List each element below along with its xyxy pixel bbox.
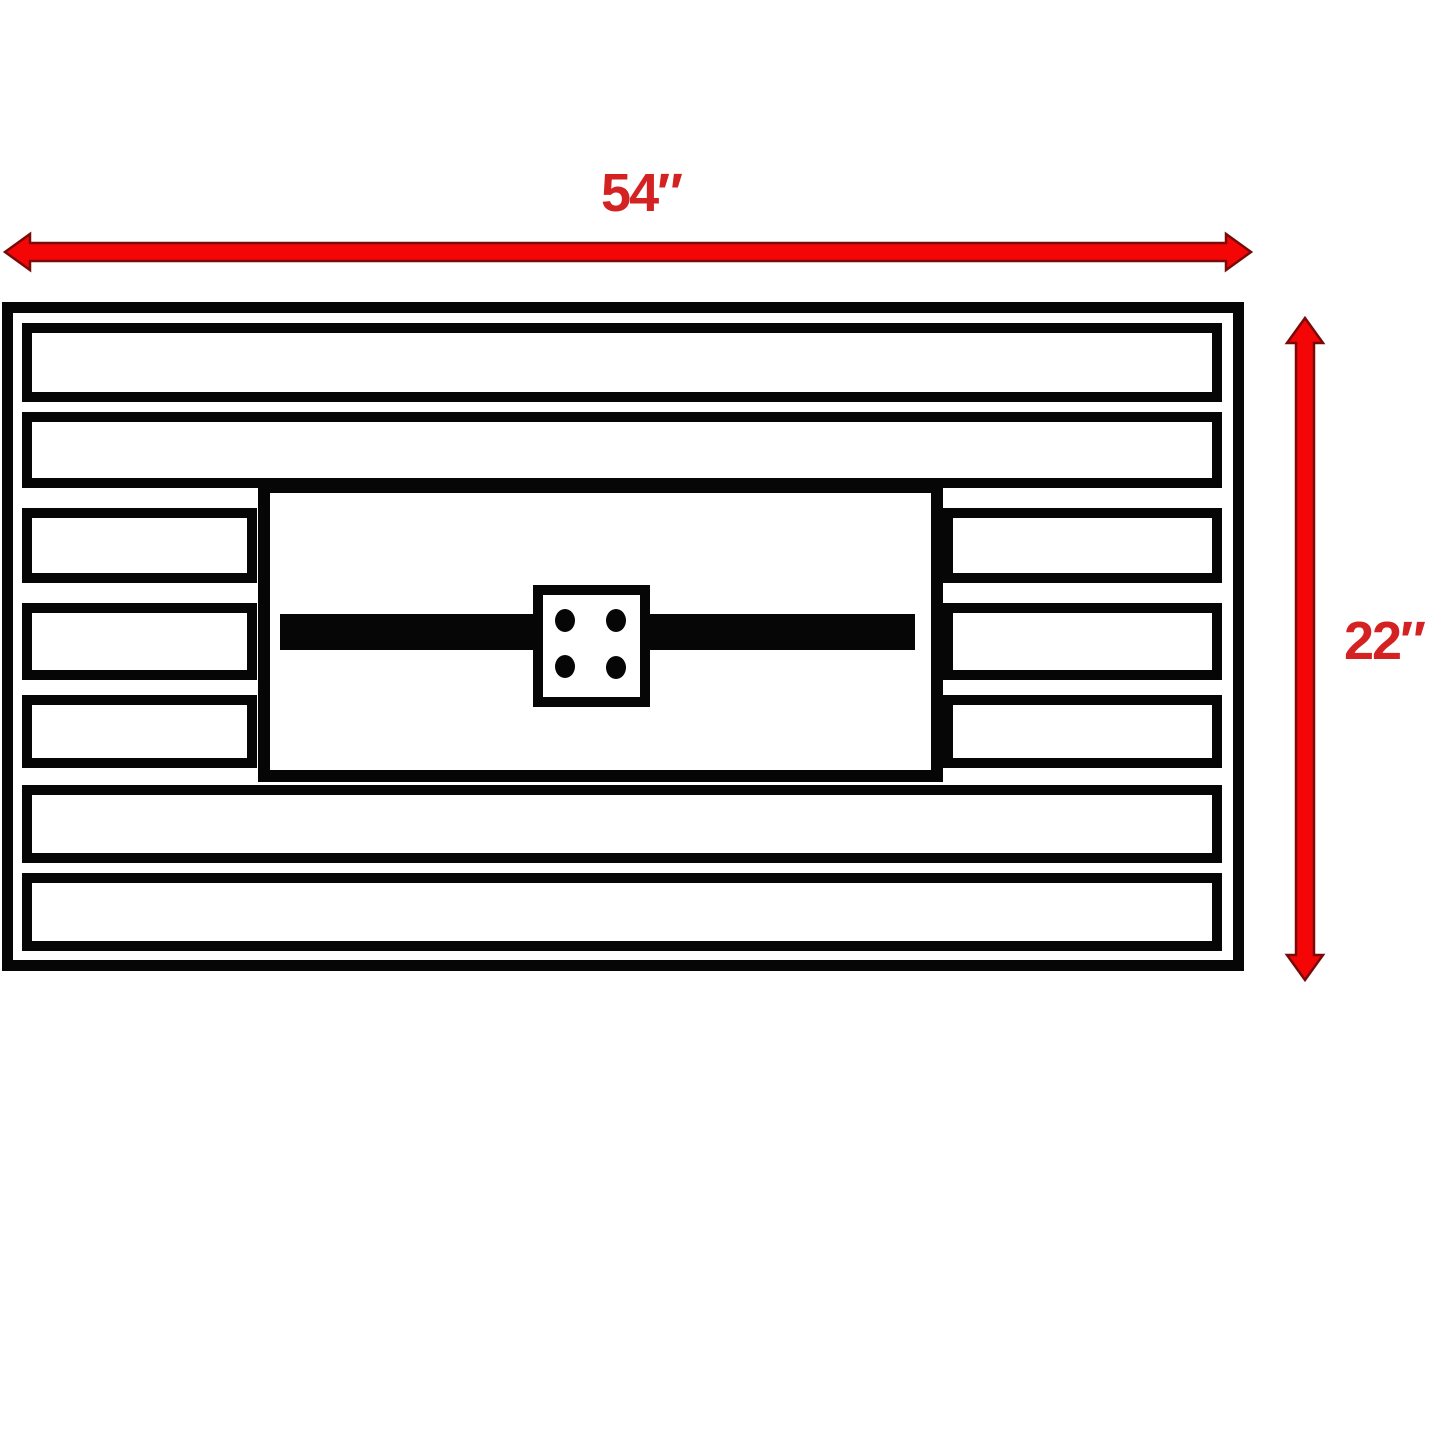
plank-slat-right-3 bbox=[943, 508, 1222, 583]
plank-slat-left-3 bbox=[22, 508, 257, 583]
plank-slat-left-4 bbox=[22, 603, 257, 680]
width-dimension-label: 54″ bbox=[541, 166, 741, 220]
plank-slat-bottom-7 bbox=[22, 873, 1222, 951]
plank-slat-bottom-6 bbox=[22, 785, 1222, 863]
height-dimension-arrow bbox=[1283, 316, 1327, 982]
plank-slat-right-4 bbox=[943, 603, 1222, 680]
burner-mount-plate bbox=[533, 585, 650, 707]
burner-hole bbox=[555, 609, 575, 632]
table-top-outline bbox=[2, 302, 1244, 971]
height-dimension-label: 22″ bbox=[1344, 614, 1445, 668]
burner-hole bbox=[606, 656, 626, 679]
double-headed-arrow-icon bbox=[1287, 318, 1323, 980]
plank-slat-top-1 bbox=[22, 323, 1222, 402]
plank-slat-top-2 bbox=[22, 412, 1222, 488]
width-dimension-arrow bbox=[3, 230, 1253, 274]
burner-hole bbox=[606, 609, 626, 632]
double-headed-arrow-icon bbox=[5, 234, 1251, 270]
burner-panel bbox=[258, 481, 943, 782]
plank-slat-right-5 bbox=[943, 695, 1222, 768]
dimension-diagram-canvas: 54″ 22″ bbox=[0, 0, 1445, 1445]
plank-slat-left-5 bbox=[22, 695, 257, 768]
burner-hole bbox=[555, 655, 575, 678]
